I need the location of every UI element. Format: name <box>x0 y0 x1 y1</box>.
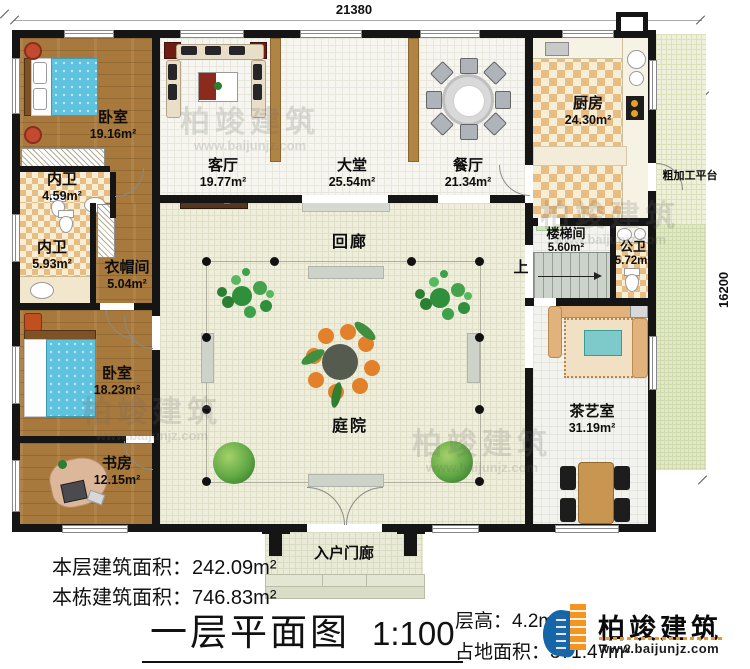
column <box>202 257 211 266</box>
round-tree <box>431 441 473 483</box>
room-label-porch: 入户门廊 <box>314 546 374 563</box>
room-label-bath1: 内卫 4.59m² <box>42 172 82 203</box>
sink <box>30 282 54 299</box>
hall-pillar <box>270 38 281 162</box>
closet-hatch <box>21 148 105 167</box>
window <box>62 525 128 533</box>
round-tree <box>213 442 255 484</box>
sofa-cushion <box>205 46 221 55</box>
platform-floor <box>656 34 706 224</box>
sofa-cushion <box>229 46 245 55</box>
nightstand-lamp <box>24 126 42 144</box>
dimension-right: 16200 <box>716 256 731 308</box>
dimension-line-top <box>14 20 702 21</box>
tea-sofa-right <box>632 318 648 378</box>
nightstand <box>24 313 42 331</box>
bed-sheet <box>24 339 48 417</box>
kitchen-counter-low <box>533 146 627 166</box>
column <box>270 257 279 266</box>
window <box>432 525 479 533</box>
room-label-cloak: 衣帽间 5.04m² <box>104 260 149 291</box>
room-label-bath3: 公卫 5.72m² <box>615 240 651 267</box>
stove-burner <box>631 110 638 117</box>
door-gap-platform <box>648 163 656 191</box>
column <box>475 477 484 486</box>
window <box>64 30 114 38</box>
plan-title: 一层平面图 1:100 <box>142 602 463 663</box>
bed-pillow <box>33 62 47 84</box>
column <box>475 257 484 266</box>
room-label-platform: 粗加工平台 <box>663 170 718 182</box>
stairs-arrow-head <box>594 272 602 280</box>
window <box>12 346 20 404</box>
room-label-hall: 大堂 25.54m² <box>329 158 376 189</box>
brand-url: www.baijunjz.com <box>599 641 719 656</box>
room-label-living: 客厅 19.77m² <box>200 158 247 189</box>
tea-chair <box>560 498 576 522</box>
wall-dining-kitchen <box>525 38 533 165</box>
floor-height-stat: 层高：4.2m <box>455 606 554 633</box>
dining-table-center <box>453 85 485 117</box>
window <box>649 60 657 110</box>
room-label-kitchen: 厨房 24.30m² <box>565 96 612 127</box>
porch-column-bar <box>397 524 425 534</box>
fruit-plant-base <box>322 344 358 380</box>
tea-chair <box>560 466 576 490</box>
dining-chair <box>460 124 478 140</box>
fern-plant <box>430 288 450 308</box>
room-label-courtyard: 庭院 <box>332 418 368 436</box>
stairs-arrow-line <box>538 276 594 277</box>
logo-blue-bar <box>556 614 566 654</box>
column <box>202 405 211 414</box>
wall-bedsuite-right <box>152 38 160 524</box>
door-gap-kitchen <box>538 218 560 226</box>
column <box>202 333 211 342</box>
stair-up-label: 上 <box>513 260 528 277</box>
dining-chair <box>426 91 442 109</box>
table-plant <box>214 82 222 90</box>
sofa-cushion <box>181 46 197 55</box>
opening-hall-corridor <box>302 195 388 203</box>
column <box>475 405 484 414</box>
sofa-cushion <box>253 84 262 100</box>
window <box>12 214 20 262</box>
bed-quilt <box>46 339 96 417</box>
nightstand-lamp <box>24 42 42 60</box>
porch-column-bar <box>262 524 290 534</box>
column <box>202 477 211 486</box>
kitchen-sink <box>629 71 644 86</box>
sofa-cushion <box>168 64 177 80</box>
opening-dining-corridor <box>438 195 490 203</box>
tea-sofa-left <box>548 306 562 358</box>
garden-strip <box>656 224 706 470</box>
porch-column-stem <box>404 534 417 556</box>
entrance-gap <box>307 524 382 532</box>
room-label-bedroom1: 卧室 19.16m² <box>90 110 137 141</box>
floor-plan-canvas: 21380 16200 <box>0 0 750 669</box>
sofa-cushion <box>253 64 262 80</box>
dimension-top: 21380 <box>330 2 378 17</box>
path-pad <box>308 266 384 279</box>
hall-pillar <box>408 38 419 162</box>
logo-orange-tower <box>570 604 586 650</box>
tea-chair <box>614 466 630 490</box>
floor-area-stat: 本层建筑面积：242.09m² <box>52 551 277 580</box>
room-label-bedroom2: 卧室 18.23m² <box>94 366 141 397</box>
room-label-corridor: 回廊 <box>332 234 368 252</box>
window <box>420 30 480 38</box>
window <box>300 30 362 38</box>
door-gap-cloak <box>100 303 134 310</box>
kitchen-sink <box>627 50 646 69</box>
porch-step <box>265 586 425 599</box>
column <box>475 333 484 342</box>
window <box>180 30 244 38</box>
room-label-tea: 茶艺室 31.19m² <box>569 404 616 435</box>
tea-dining-table <box>578 462 614 524</box>
dim-tick <box>698 475 707 484</box>
dining-chair <box>495 91 511 109</box>
tea-table <box>584 330 622 356</box>
wall-stair-left-upper <box>525 203 533 245</box>
path-pad <box>308 474 384 487</box>
window <box>12 58 20 114</box>
door-gap-bedroom2 <box>152 316 160 350</box>
window <box>555 525 619 533</box>
dim-tick <box>0 9 9 18</box>
bed-quilt <box>51 58 98 116</box>
room-label-bath2: 内卫 5.93m² <box>32 240 72 271</box>
door-gap-tea <box>534 298 556 306</box>
brand-divider <box>599 637 723 640</box>
column <box>407 257 416 266</box>
dining-chair <box>460 58 478 74</box>
window <box>562 30 614 38</box>
sofa-cushion <box>168 84 177 100</box>
desk-plant <box>58 460 67 469</box>
stove-burner <box>631 100 638 107</box>
room-label-study: 书房 12.15m² <box>94 456 141 487</box>
wall-tea-left <box>525 368 533 532</box>
tea-chair <box>614 498 630 522</box>
bed-pillow <box>33 88 47 110</box>
room-label-dining: 餐厅 21.34m² <box>445 158 492 189</box>
kitchen-appliance <box>545 42 569 56</box>
window <box>12 460 20 512</box>
wall-bath2-cloak <box>90 203 96 303</box>
room-label-stair: 楼梯间 5.60m² <box>546 227 585 254</box>
fern-plant <box>232 286 252 306</box>
chimney <box>616 12 648 36</box>
window <box>649 336 657 390</box>
brand-logo-icon <box>543 604 595 656</box>
